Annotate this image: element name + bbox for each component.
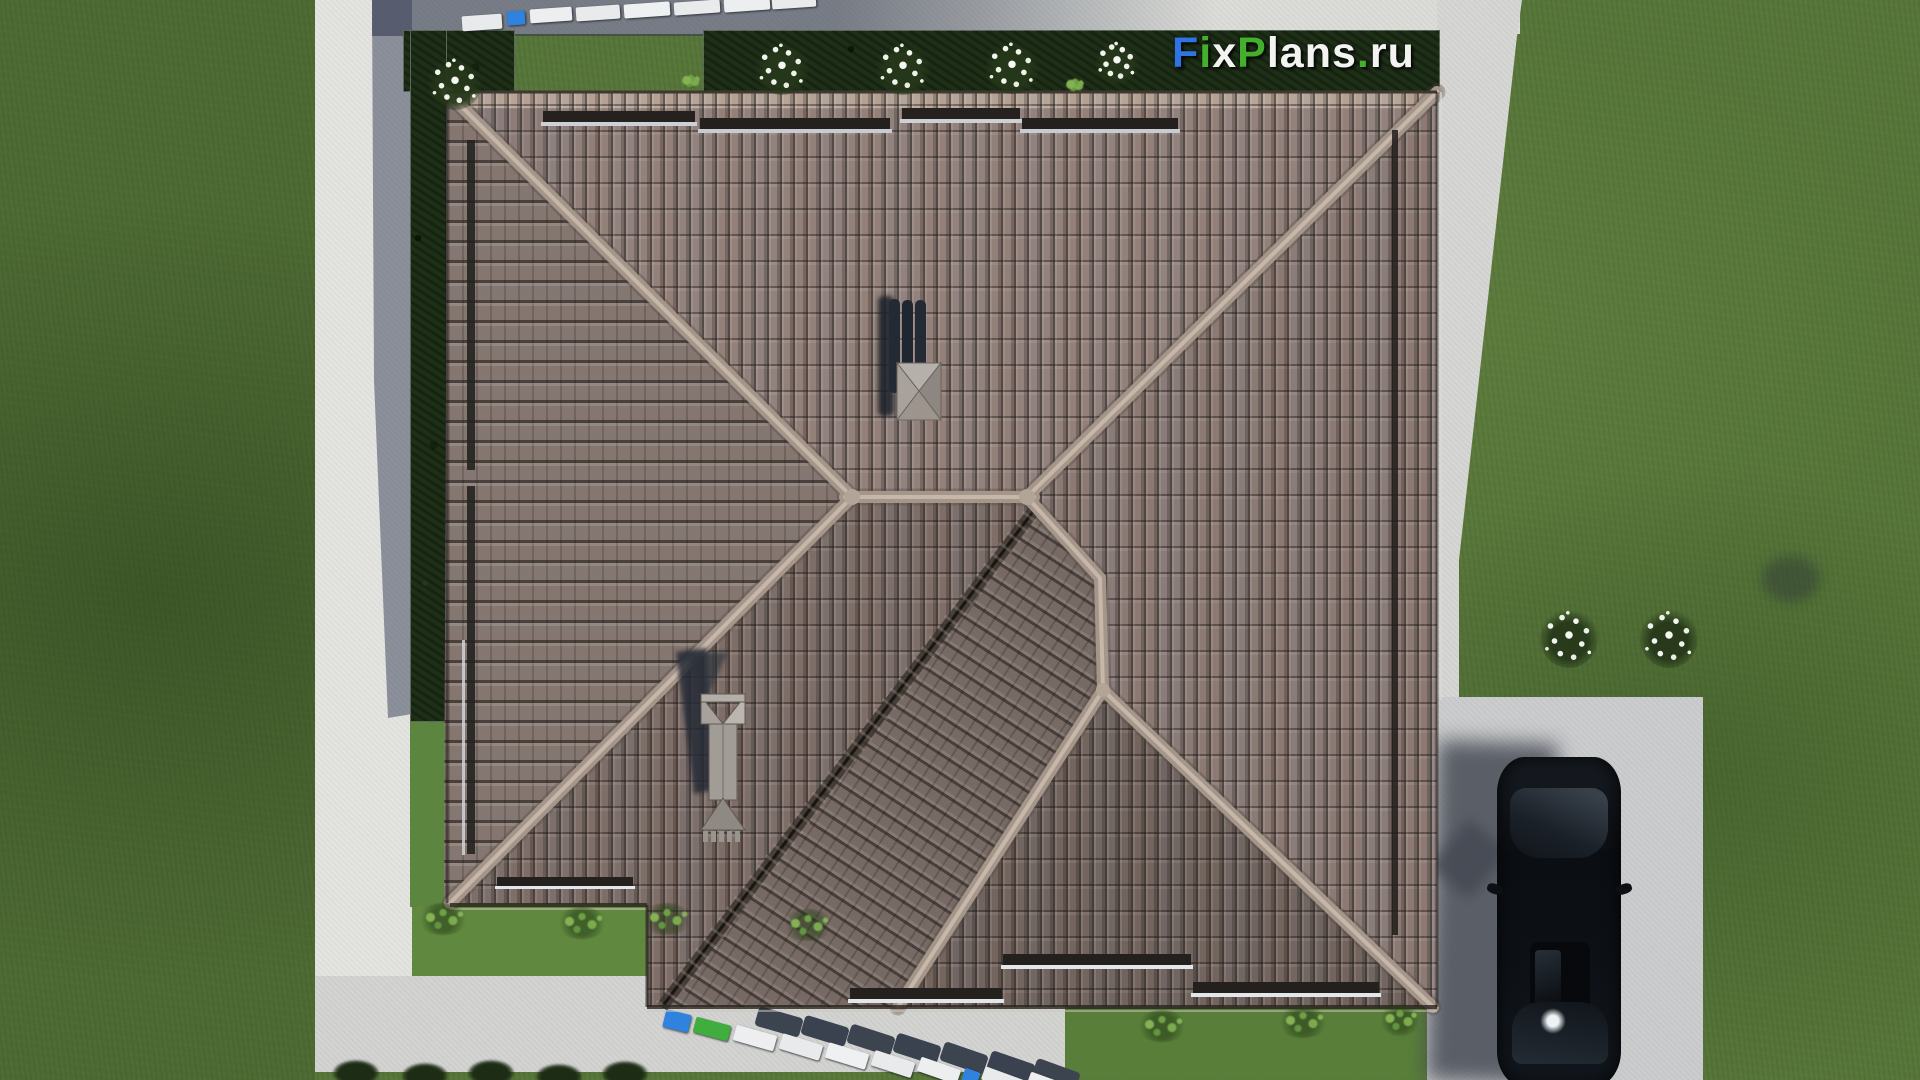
fixplans-watermark: FixPlans.ru [1172,32,1415,75]
shrub [557,907,607,939]
flower-bush [985,40,1039,94]
ridge-junction-cap [1096,683,1110,697]
chimney-upper [878,296,941,420]
watermark-letter-segment: x [1212,29,1237,77]
shrub [1278,1006,1328,1038]
bottom-bush [468,1060,514,1080]
roof-ridges [447,92,1437,1007]
flower-bush [1640,608,1698,668]
watermark-letter-segment: F [1172,29,1199,77]
watermark-letter-segment: i [1199,29,1212,77]
watermark-letter-segment: ru [1370,29,1415,77]
shrub [1380,1004,1420,1036]
roof-details [0,0,1920,1080]
chimney-pyramid-cap [897,363,941,420]
flower-bush [1095,40,1139,84]
ridge-junction-cap [1019,489,1035,505]
shrub [642,903,692,935]
flower-bush [876,41,930,95]
render-scene: FixPlans.ru [0,0,1920,1080]
bottom-bush [333,1060,379,1080]
watermark-letter-segment: P [1237,29,1267,77]
watermark-letter-segment: . [1357,29,1370,77]
flower-bush [428,56,482,110]
shrub [418,903,468,935]
chimney-lower [676,648,745,842]
flower-bush [1540,608,1598,668]
shrub [682,74,700,88]
shrub [1137,1010,1187,1042]
flower-bush [755,41,809,95]
watermark-letter-segment: lans [1267,29,1357,77]
bottom-bush [602,1061,648,1080]
shrub [783,909,833,941]
chimney-teeth [703,831,740,842]
shrub [1066,78,1084,92]
ridge-junction-cap [844,489,860,505]
